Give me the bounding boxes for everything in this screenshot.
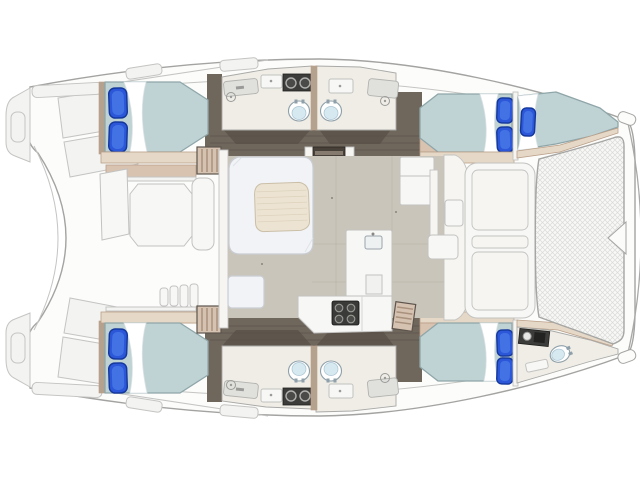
- sink-basin: [300, 78, 310, 88]
- saloon-seat: [228, 276, 264, 308]
- pillow: [497, 358, 514, 385]
- port-aft-steps: [197, 147, 221, 174]
- cabinet-handle: [270, 80, 273, 83]
- saloon-aft-wall: [219, 150, 228, 328]
- stove: [332, 301, 359, 325]
- cockpit-bench-aft-starboard-edge: [106, 307, 196, 311]
- shower-cabinet: [367, 378, 399, 398]
- floor-dot: [261, 263, 263, 265]
- floor-dot: [331, 197, 333, 199]
- cabinet-handle: [339, 390, 342, 393]
- starboard-aft-steps: [197, 306, 221, 333]
- cockpit-bench-left: [100, 169, 129, 240]
- starboard-transom-step: [11, 333, 25, 363]
- headboard: [99, 82, 105, 154]
- starboard-forward-cabin: [420, 312, 518, 386]
- floor-dot: [395, 211, 397, 213]
- port-aft-bathroom: [222, 66, 312, 130]
- galley-sink: [365, 236, 382, 249]
- shower-cabinet: [223, 380, 258, 398]
- bed-base-shelf: [101, 312, 208, 323]
- step-bar: [190, 284, 198, 307]
- cabinet-handle: [270, 394, 273, 397]
- port-transom-step: [11, 112, 25, 142]
- dinette-table: [254, 182, 310, 232]
- forward-cockpit: [465, 163, 535, 318]
- sink-basin: [286, 391, 296, 401]
- shower-drain-dot: [384, 377, 386, 379]
- catamaran-floorplan: [0, 0, 640, 480]
- cabin-divider-wall: [513, 92, 518, 160]
- shower-cabinet: [367, 78, 399, 98]
- forward-bench-seat: [472, 170, 528, 230]
- step-bar: [160, 288, 168, 306]
- port-forward-cabin: [420, 92, 518, 163]
- pillow: [497, 127, 514, 153]
- pillow: [497, 98, 514, 124]
- starboard-wardrobe-left: [222, 330, 312, 346]
- pillow: [108, 88, 127, 119]
- bed-base-shelf: [101, 152, 208, 163]
- pillow: [108, 329, 127, 360]
- cabinet-handle: [339, 85, 342, 88]
- pillow: [108, 122, 127, 153]
- step-bar: [170, 286, 178, 306]
- galley-faucet: [372, 233, 375, 236]
- cockpit-table: [130, 184, 192, 246]
- port-aft-cabin-floor: [207, 74, 222, 156]
- burner: [347, 315, 355, 323]
- saloon: [219, 150, 447, 333]
- counter-hob: [534, 332, 546, 343]
- galley-stairs: [392, 302, 416, 332]
- burner: [335, 315, 343, 323]
- bathroom-divider-wall: [311, 66, 317, 130]
- galley-appliance: [366, 275, 382, 294]
- port-forward-bathroom: [311, 66, 399, 130]
- starboard-forward-bathroom: [311, 346, 399, 412]
- headboard: [99, 321, 105, 393]
- foredeck-step: [445, 200, 463, 226]
- pillow: [520, 108, 535, 137]
- sink-basin: [523, 332, 532, 341]
- saloon-cabinet: [400, 157, 434, 205]
- burner: [335, 304, 343, 312]
- bow-counter: [518, 328, 549, 346]
- sink-basin: [300, 391, 310, 401]
- shower-drain-dot: [230, 384, 232, 386]
- pillow: [108, 363, 127, 394]
- port-forward-cabin-floor: [394, 92, 422, 156]
- forward-bench-middle: [472, 236, 528, 248]
- shower-cabinet: [223, 78, 258, 96]
- burner: [347, 304, 355, 312]
- pillow: [497, 330, 514, 357]
- floorplan-canvas: [0, 0, 640, 480]
- bathroom-divider-wall: [311, 346, 317, 410]
- stern-transoms: [6, 88, 30, 387]
- foredeck-step: [428, 235, 458, 259]
- forward-bench-seat: [472, 252, 528, 310]
- step-bar: [180, 285, 188, 307]
- shower-drain-dot: [384, 100, 386, 102]
- starboard-aft-bathroom: [222, 346, 312, 409]
- cockpit-bench-side: [192, 178, 214, 250]
- shower-drain-dot: [230, 96, 232, 98]
- sink-basin: [286, 78, 296, 88]
